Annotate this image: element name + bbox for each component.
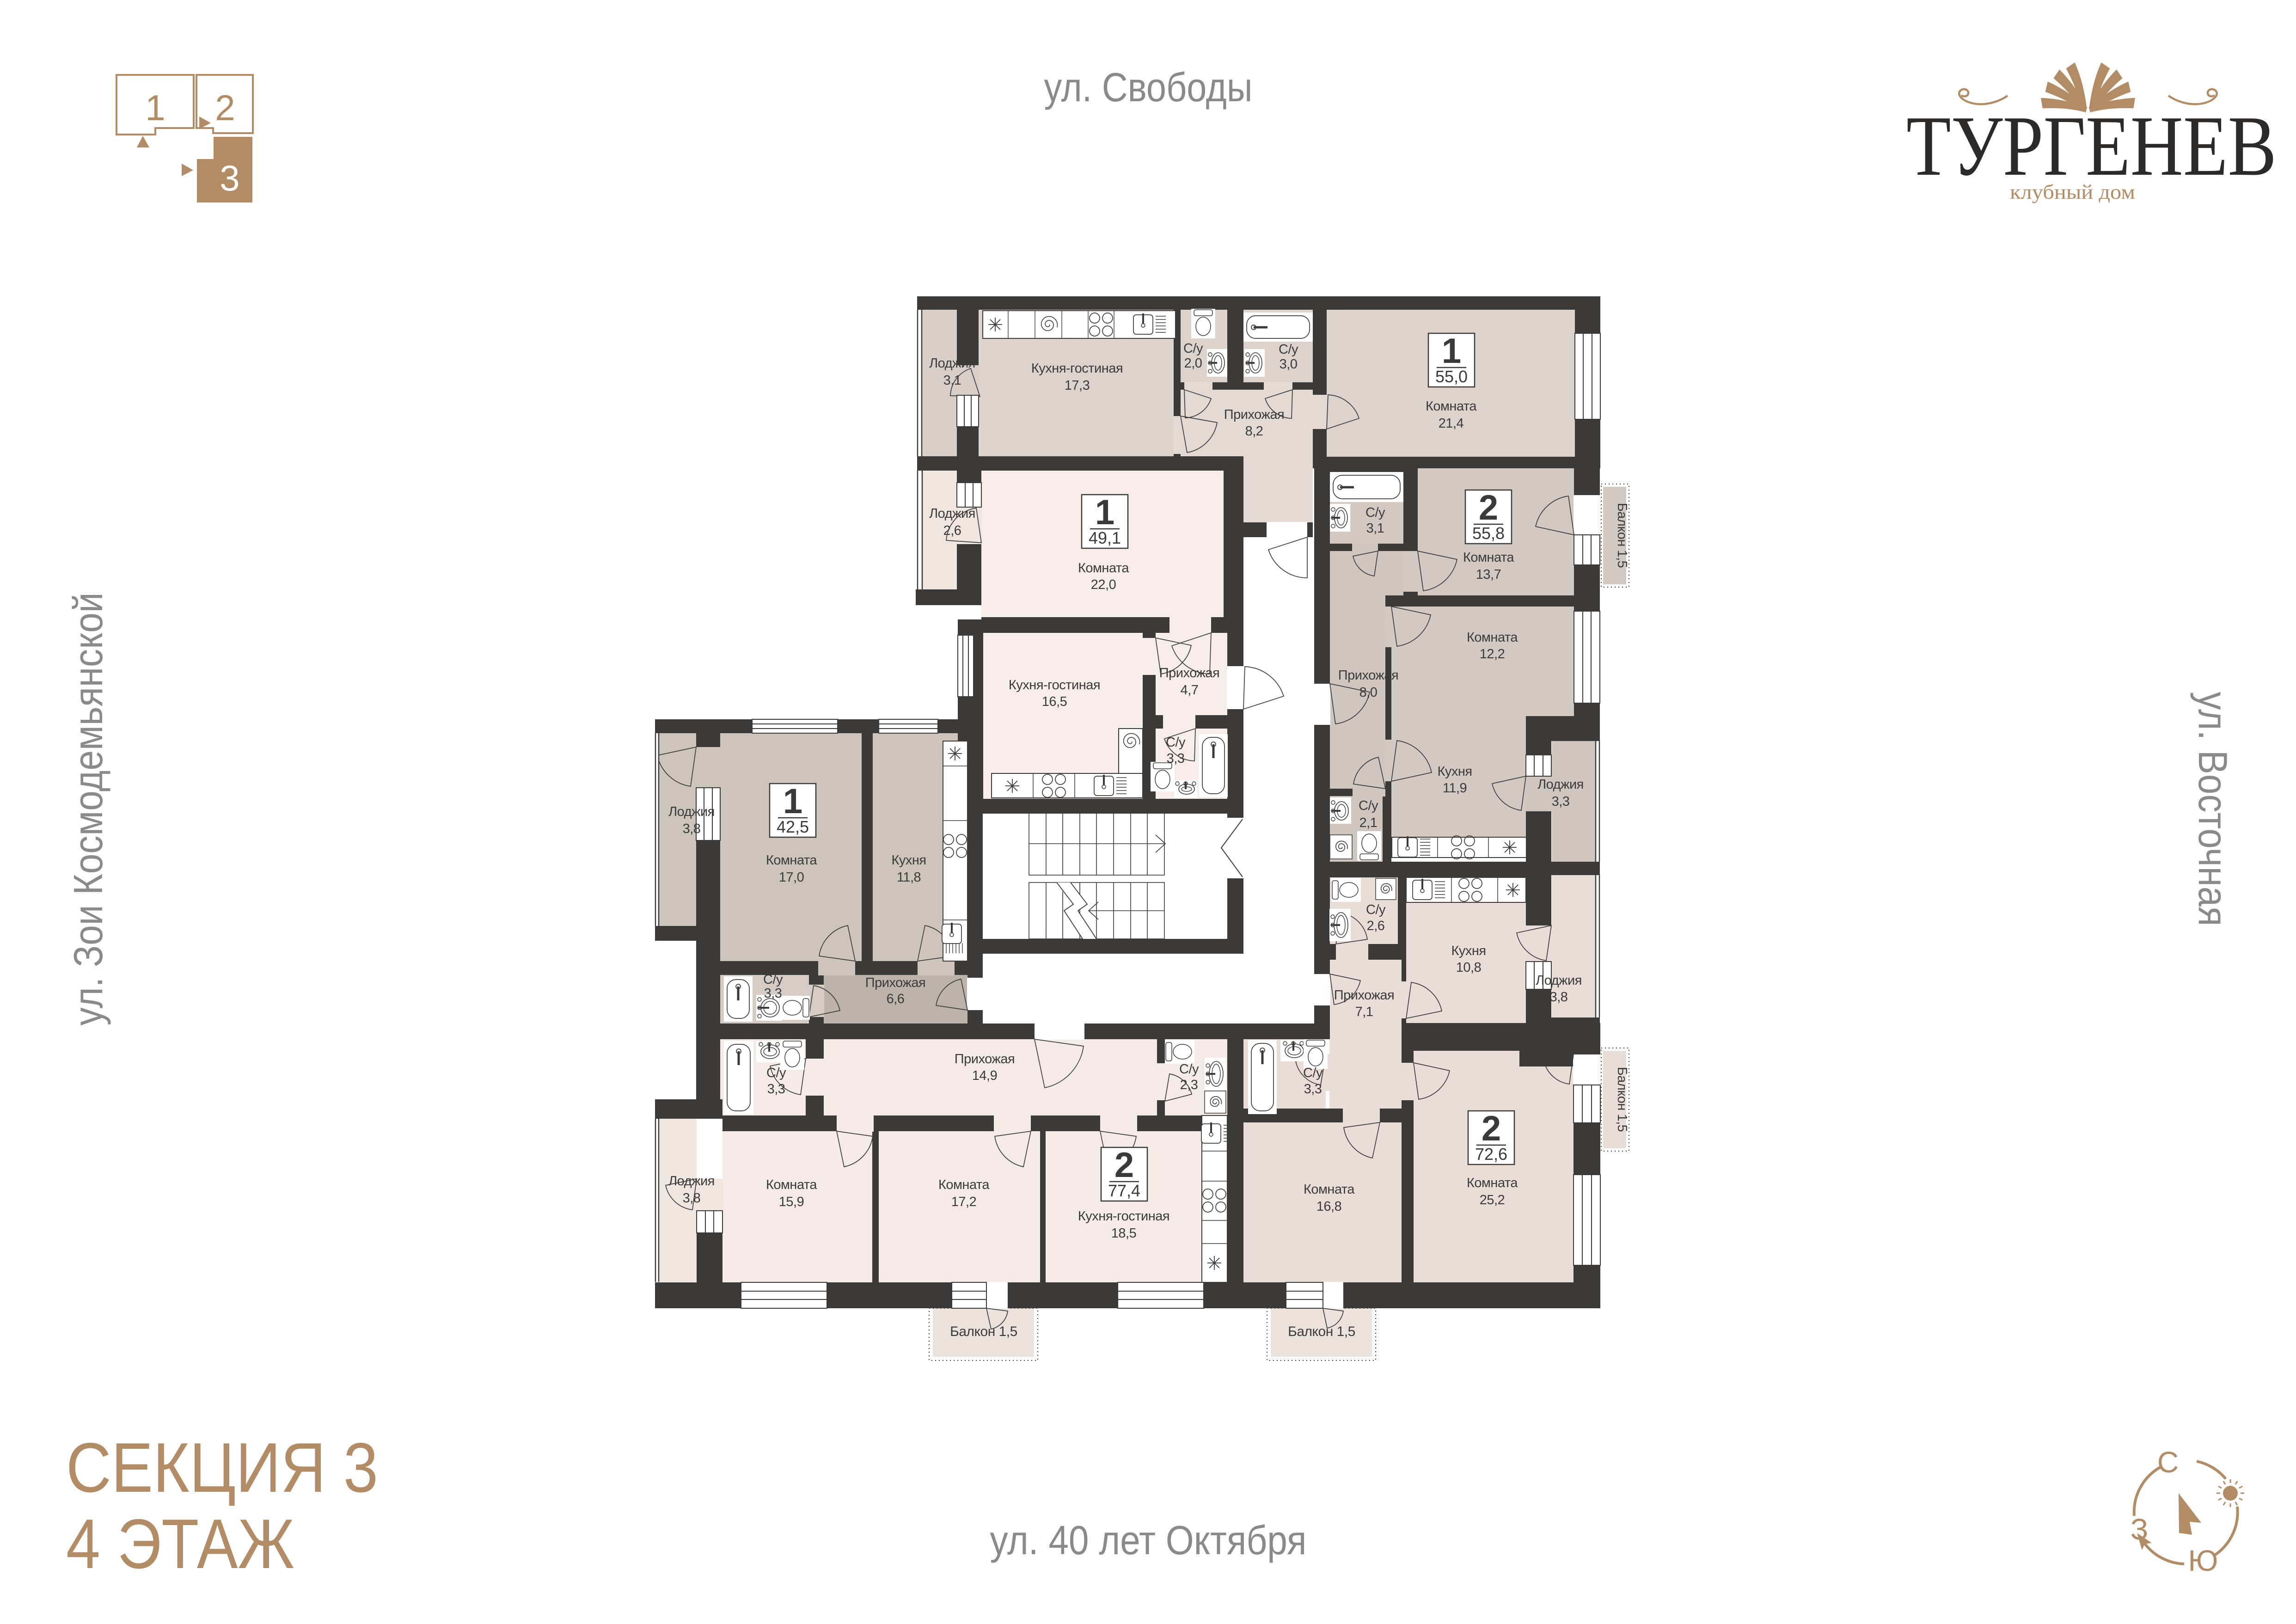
svg-text:42,5: 42,5: [777, 817, 809, 836]
svg-text:11,9: 11,9: [1443, 781, 1467, 796]
svg-text:С: С: [2157, 1446, 2179, 1479]
svg-text:Балкон 1,5: Балкон 1,5: [950, 1324, 1017, 1339]
svg-text:Лоджия: Лоджия: [668, 1174, 715, 1189]
svg-text:6,6: 6,6: [887, 992, 905, 1006]
svg-text:Лоджия: Лоджия: [929, 356, 975, 371]
svg-text:Комната: Комната: [938, 1177, 990, 1192]
svg-text:Кухня: Кухня: [1437, 764, 1472, 779]
svg-text:2,1: 2,1: [1359, 815, 1378, 830]
svg-text:Комната: Комната: [1426, 399, 1477, 414]
svg-text:Прихожая: Прихожая: [1224, 407, 1284, 422]
svg-text:3,3: 3,3: [1552, 794, 1570, 809]
svg-text:3,8: 3,8: [1550, 990, 1568, 1005]
svg-text:2: 2: [1114, 1146, 1134, 1185]
svg-text:Прихожая: Прихожая: [865, 975, 925, 990]
svg-text:3,3: 3,3: [767, 1082, 785, 1097]
svg-text:7,1: 7,1: [1355, 1005, 1373, 1019]
svg-text:Комната: Комната: [766, 1177, 817, 1192]
svg-text:Прихожая: Прихожая: [1159, 666, 1219, 680]
svg-text:Прихожая: Прихожая: [1334, 988, 1394, 1003]
svg-text:1: 1: [145, 87, 165, 128]
svg-text:16,8: 16,8: [1316, 1199, 1341, 1214]
svg-text:Комната: Комната: [1304, 1182, 1355, 1197]
svg-text:4,7: 4,7: [1181, 683, 1199, 698]
svg-text:15,9: 15,9: [779, 1195, 804, 1209]
svg-text:14,9: 14,9: [972, 1068, 997, 1083]
svg-text:12,2: 12,2: [1480, 647, 1505, 662]
svg-text:17,0: 17,0: [779, 870, 804, 885]
svg-text:Лоджия: Лоджия: [668, 804, 715, 819]
svg-text:21,4: 21,4: [1439, 416, 1464, 431]
svg-text:Комната: Комната: [766, 853, 817, 868]
svg-text:Балкон 1,5: Балкон 1,5: [1615, 503, 1629, 568]
svg-text:8,2: 8,2: [1245, 424, 1263, 439]
svg-text:С/у: С/у: [766, 1066, 786, 1080]
svg-text:Прихожая: Прихожая: [955, 1052, 1015, 1066]
svg-text:22,0: 22,0: [1091, 577, 1116, 592]
svg-text:11,8: 11,8: [897, 870, 921, 885]
svg-text:17,2: 17,2: [951, 1195, 976, 1209]
svg-text:Кухня-гостиная: Кухня-гостиная: [1031, 361, 1123, 376]
svg-text:Кухня-гостиная: Кухня-гостиная: [1078, 1209, 1169, 1224]
svg-text:17,3: 17,3: [1065, 378, 1090, 393]
svg-text:3,3: 3,3: [764, 986, 782, 1001]
svg-text:ул. 40 лет Октября: ул. 40 лет Октября: [990, 1517, 1307, 1563]
svg-text:Лоджия: Лоджия: [1536, 973, 1582, 988]
svg-text:55,0: 55,0: [1435, 367, 1468, 386]
svg-text:8,0: 8,0: [1359, 685, 1378, 700]
svg-text:3,8: 3,8: [683, 821, 701, 836]
svg-text:С/у: С/у: [1366, 902, 1386, 917]
svg-text:С/у: С/у: [1303, 1066, 1323, 1080]
svg-text:ул. Зои Космодемьянской: ул. Зои Космодемьянской: [65, 593, 111, 1026]
svg-text:С/у: С/у: [1183, 341, 1203, 356]
svg-text:С/у: С/у: [763, 972, 783, 987]
svg-text:СЕКЦИЯ 3: СЕКЦИЯ 3: [66, 1428, 378, 1507]
svg-text:Балкон 1,5: Балкон 1,5: [1288, 1324, 1355, 1339]
svg-text:ТУРГЕНЕВ: ТУРГЕНЕВ: [1906, 98, 2277, 194]
svg-text:3,1: 3,1: [943, 373, 961, 388]
svg-text:2: 2: [1479, 488, 1498, 527]
svg-text:13,7: 13,7: [1476, 567, 1501, 582]
svg-text:3,3: 3,3: [1167, 751, 1185, 766]
svg-text:Комната: Комната: [1078, 561, 1129, 576]
svg-text:25,2: 25,2: [1480, 1193, 1505, 1207]
svg-text:Прихожая: Прихожая: [1338, 668, 1398, 683]
svg-text:3,1: 3,1: [1366, 521, 1384, 536]
svg-text:Балкон 1,5: Балкон 1,5: [1615, 1067, 1629, 1132]
svg-text:72,6: 72,6: [1475, 1145, 1507, 1164]
svg-text:Комната: Комната: [1463, 550, 1514, 565]
svg-text:С/у: С/у: [1166, 735, 1186, 750]
svg-text:18,5: 18,5: [1111, 1226, 1136, 1241]
svg-text:1: 1: [783, 782, 802, 821]
svg-text:10,8: 10,8: [1456, 960, 1481, 975]
svg-text:3,3: 3,3: [1304, 1082, 1322, 1097]
svg-text:Лоджия: Лоджия: [929, 506, 975, 521]
svg-text:3,0: 3,0: [1280, 357, 1298, 372]
svg-text:1: 1: [1442, 331, 1461, 371]
svg-text:1: 1: [1095, 493, 1114, 532]
svg-text:С/у: С/у: [1359, 798, 1378, 813]
svg-text:3: 3: [220, 158, 239, 198]
svg-text:49,1: 49,1: [1089, 528, 1121, 547]
svg-text:2: 2: [215, 87, 235, 128]
svg-text:ул. Свободы: ул. Свободы: [1044, 64, 1253, 110]
svg-text:С/у: С/у: [1279, 342, 1298, 357]
svg-text:55,8: 55,8: [1472, 524, 1505, 543]
svg-text:З: З: [2131, 1513, 2149, 1546]
svg-text:Ю: Ю: [2188, 1544, 2218, 1577]
svg-text:Комната: Комната: [1467, 1176, 1518, 1190]
svg-text:2,3: 2,3: [1180, 1078, 1198, 1092]
svg-text:Комната: Комната: [1467, 630, 1518, 645]
svg-text:Лоджия: Лоджия: [1537, 777, 1584, 792]
svg-text:С/у: С/у: [1179, 1062, 1199, 1077]
svg-text:2,6: 2,6: [1367, 919, 1385, 933]
svg-text:77,4: 77,4: [1108, 1181, 1140, 1200]
svg-text:3,8: 3,8: [683, 1191, 701, 1206]
svg-text:Кухня: Кухня: [1451, 944, 1486, 958]
svg-text:2,0: 2,0: [1184, 356, 1202, 371]
svg-text:Кухня-гостиная: Кухня-гостиная: [1009, 678, 1100, 692]
svg-text:клубный дом: клубный дом: [2010, 181, 2135, 203]
svg-text:16,5: 16,5: [1042, 694, 1067, 709]
svg-text:2: 2: [1482, 1109, 1501, 1148]
svg-text:Кухня: Кухня: [891, 853, 926, 868]
svg-text:ул. Восточная: ул. Восточная: [2190, 692, 2236, 926]
svg-text:4 ЭТАЖ: 4 ЭТАЖ: [66, 1505, 294, 1583]
svg-text:2,6: 2,6: [943, 523, 961, 538]
svg-text:С/у: С/у: [1365, 505, 1385, 520]
